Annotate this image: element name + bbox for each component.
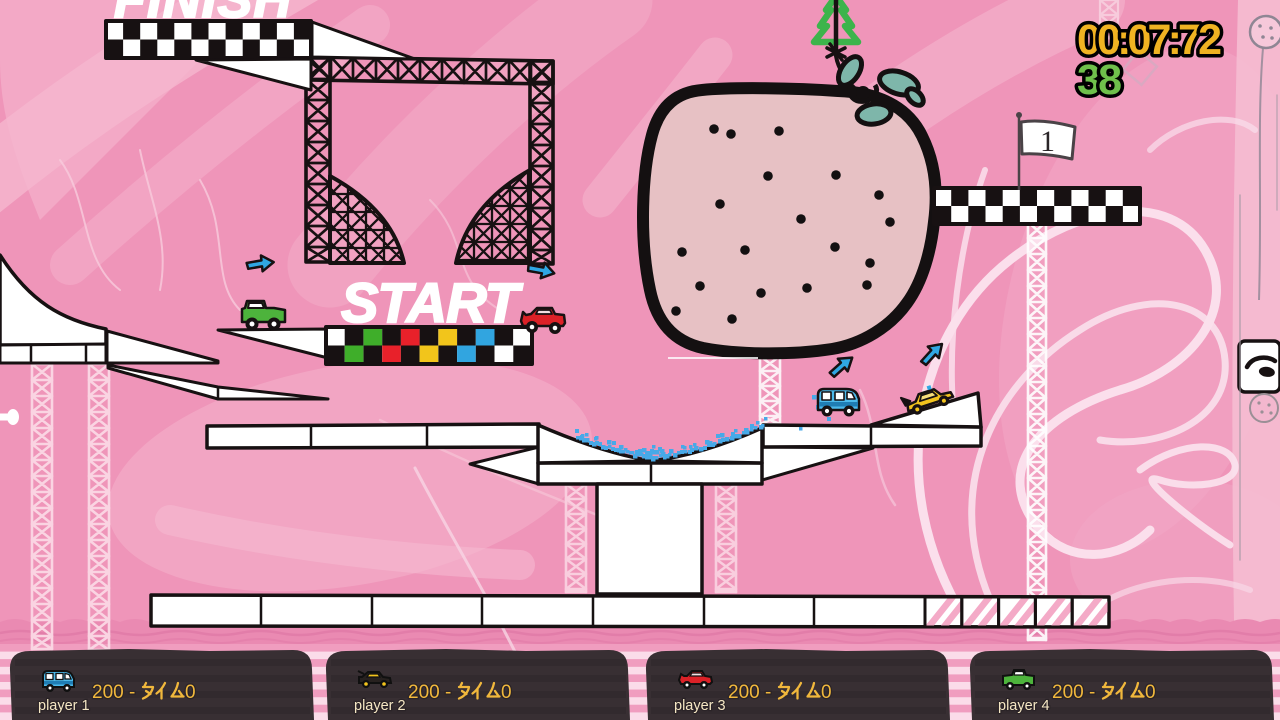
svg-text:200 -: 200 - [92, 682, 135, 703]
svg-text:player 1: player 1 [38, 698, 90, 714]
svg-text:0: 0 [501, 682, 512, 703]
svg-text:0: 0 [185, 682, 196, 703]
svg-text:player 4: player 4 [998, 698, 1050, 714]
svg-text:0: 0 [821, 682, 832, 703]
svg-text:1: 1 [1040, 125, 1055, 158]
svg-text:player 2: player 2 [354, 698, 406, 714]
svg-text:player 3: player 3 [674, 698, 726, 714]
svg-text:200 -: 200 - [728, 682, 771, 703]
svg-text:200 -: 200 - [1052, 682, 1095, 703]
svg-text:38: 38 [1077, 56, 1122, 104]
svg-text:FINISH: FINISH [114, 0, 292, 29]
svg-text:START: START [341, 271, 524, 334]
svg-text:0: 0 [1145, 682, 1156, 703]
svg-text:200 -: 200 - [408, 682, 451, 703]
